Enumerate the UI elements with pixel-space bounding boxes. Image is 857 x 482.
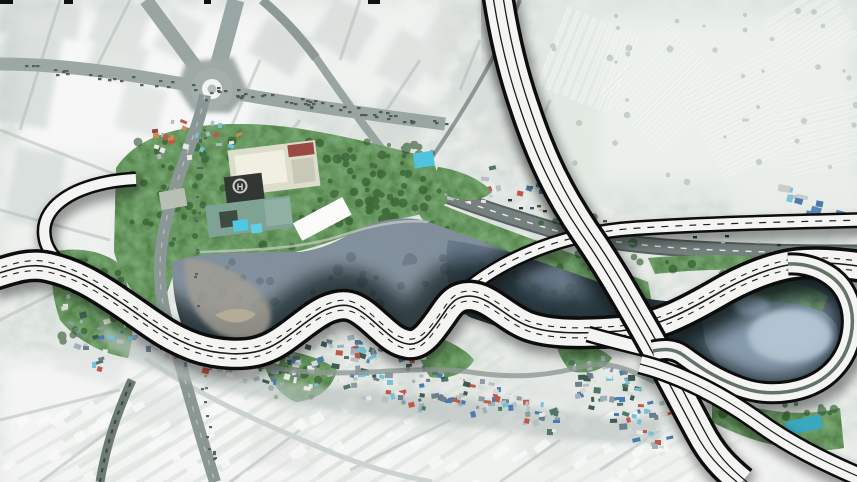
svg-text:H: H bbox=[237, 182, 244, 192]
